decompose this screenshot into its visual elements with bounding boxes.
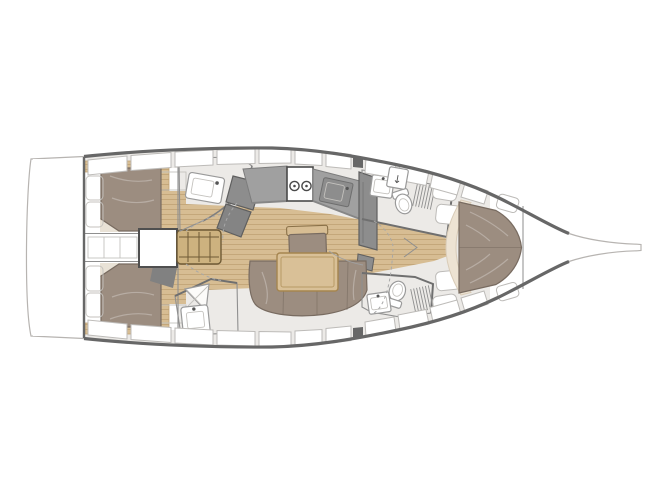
sink-unit — [185, 172, 225, 204]
sink-unit — [367, 292, 392, 315]
deck-hatch — [175, 328, 213, 345]
deck-hatch — [217, 149, 255, 165]
boat-plan-svg: ↓ — [0, 0, 660, 495]
double-bed — [101, 168, 161, 231]
deck-hatch — [259, 332, 291, 347]
overhead-hatch: ↓ — [386, 167, 408, 190]
deck-hatch — [131, 153, 171, 171]
deck-hatch — [131, 325, 171, 343]
burner-dot — [305, 185, 308, 188]
deck-hatch — [175, 150, 213, 167]
salon-table — [277, 253, 338, 291]
engine-box — [139, 229, 177, 267]
deck-hatch — [259, 149, 291, 164]
burner-dot — [293, 185, 296, 188]
boat-floor-plan: ↓ — [0, 0, 660, 495]
deck-hatch — [217, 331, 255, 347]
cabin-floor — [161, 191, 186, 231]
swim-platform — [33, 159, 83, 336]
